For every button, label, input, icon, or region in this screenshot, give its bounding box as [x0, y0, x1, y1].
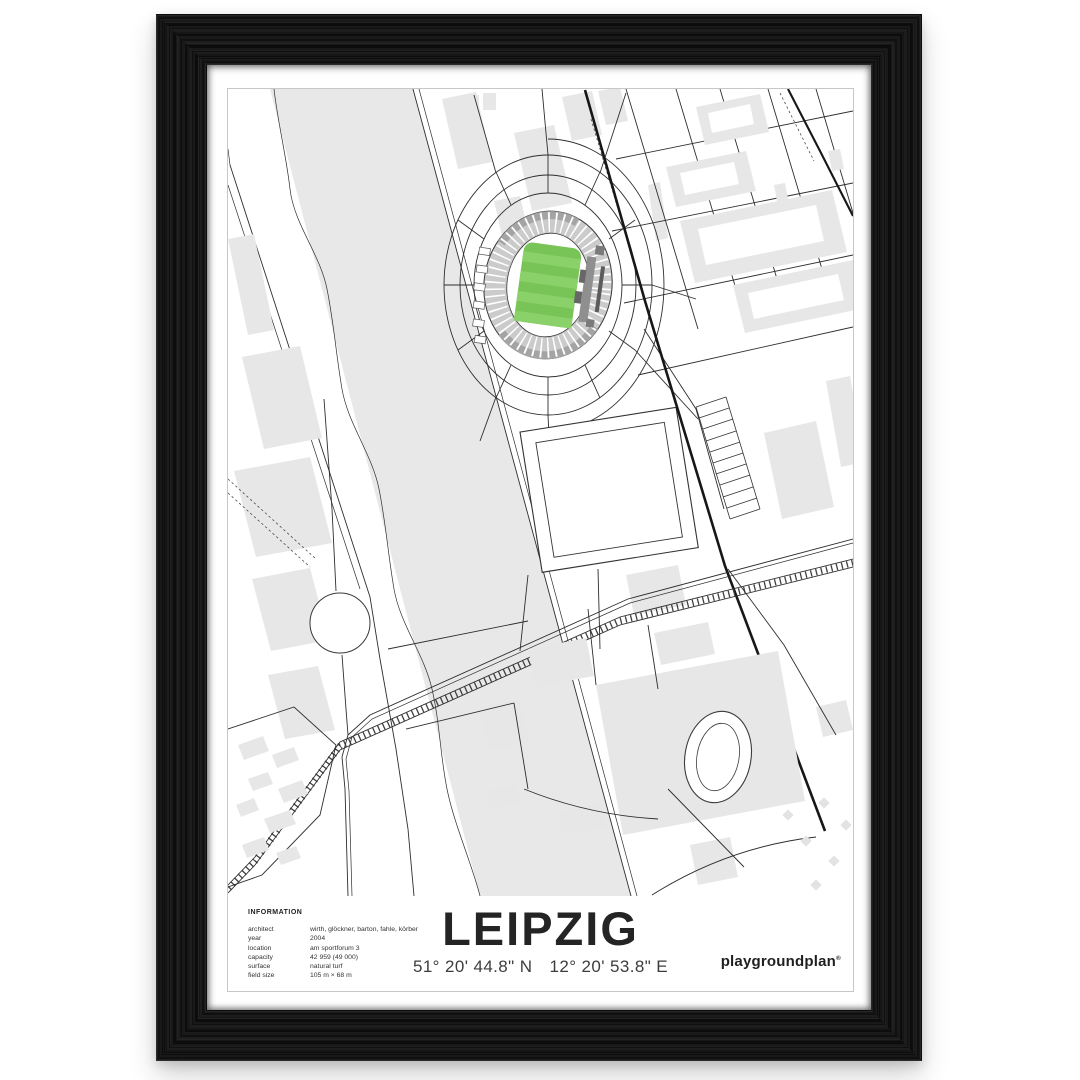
- map-area: [228, 89, 853, 896]
- frame-side-bottom: [156, 1010, 922, 1061]
- poster-sheet: INFORMATION architect wirth, glöckner, b…: [227, 88, 854, 992]
- poster-title: LEIPZIG: [228, 901, 853, 956]
- longitude: 12° 20' 53.8" E: [550, 957, 669, 976]
- stadium-map: [228, 89, 853, 896]
- brand-logo: playgroundplan®: [721, 953, 841, 970]
- frame-side-right: [871, 14, 922, 1061]
- framed-poster-mockup: INFORMATION architect wirth, glöckner, b…: [0, 0, 1080, 1080]
- frame-side-top: [156, 14, 922, 65]
- parking-area: [764, 421, 834, 519]
- latitude: 51° 20' 44.8" N: [413, 957, 532, 976]
- stadium-bowl: [465, 202, 621, 368]
- frame-side-left: [156, 14, 207, 1061]
- brand-name: playgroundplan: [721, 953, 836, 970]
- stadium-pitch: [514, 241, 583, 328]
- registered-mark: ®: [836, 955, 841, 962]
- festwiese-square: [520, 407, 698, 572]
